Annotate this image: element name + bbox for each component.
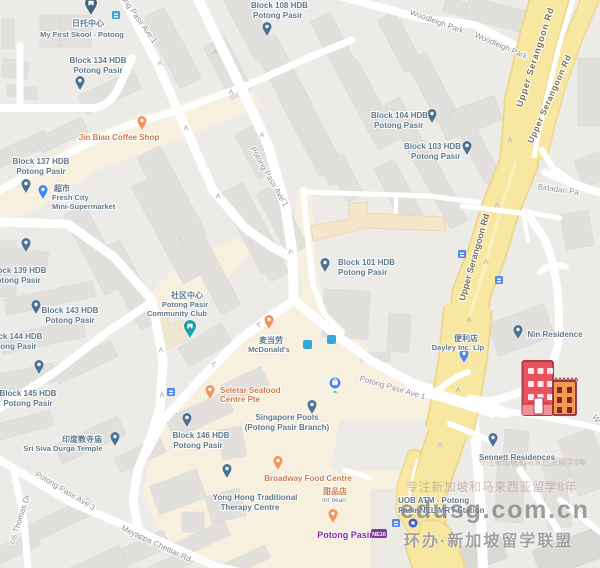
svg-text:Jin Biao Coffee Shop: Jin Biao Coffee Shop (79, 133, 160, 142)
svg-text:Potong Pasir Ave 1: Potong Pasir Ave 1 (359, 374, 427, 402)
svg-text:Block 145 HDB: Block 145 HDB (0, 389, 57, 398)
svg-text:My First Skool - Potong: My First Skool - Potong (40, 30, 124, 39)
svg-text:Block 104 HDB: Block 104 HDB (371, 111, 428, 120)
svg-text:Potong Pasir: Potong Pasir (173, 441, 222, 450)
svg-text:Block 143 HDB: Block 143 HDB (42, 306, 99, 315)
svg-text:NE10: NE10 (372, 532, 386, 538)
svg-text:Potong Pasir: Potong Pasir (3, 399, 52, 408)
svg-text:ong Pasir Ave 1: ong Pasir Ave 1 (119, 0, 159, 45)
svg-text:Potong Pasir: Potong Pasir (45, 316, 94, 325)
svg-text:麦当劳: 麦当劳 (259, 335, 283, 345)
svg-text:Potong Pasir: Potong Pasir (317, 530, 373, 540)
svg-text:McDonald's: McDonald's (248, 345, 290, 354)
svg-text:mr bean: mr bean (322, 497, 346, 504)
svg-text:Potong Pasir: Potong Pasir (73, 66, 122, 75)
svg-text:超市: 超市 (53, 183, 70, 193)
svg-text:cis Thomas Dr: cis Thomas Dr (7, 493, 32, 545)
svg-text:Singapore Pools: Singapore Pools (255, 413, 319, 422)
svg-text:Centre Pte: Centre Pte (220, 395, 261, 404)
svg-text:Potong Pasir: Potong Pasir (0, 276, 41, 285)
svg-text:Sri Siva Durga Temple: Sri Siva Durga Temple (23, 444, 102, 453)
svg-text:Yong Hong Traditional: Yong Hong Traditional (213, 493, 298, 502)
svg-text:Potong Pasir: Potong Pasir (338, 268, 387, 277)
svg-text:Therapy Centre: Therapy Centre (221, 503, 280, 512)
svg-text:Potong Pasir: Potong Pasir (16, 167, 65, 176)
svg-text:Meyappa Chettiar Rd: Meyappa Chettiar Rd (120, 524, 192, 564)
svg-text:Potong Pasir: Potong Pasir (162, 300, 208, 309)
svg-text:Block 144 HDB: Block 144 HDB (0, 332, 43, 341)
svg-text:Broadway Food Centre: Broadway Food Centre (264, 474, 352, 483)
svg-text:Seletar Seafood: Seletar Seafood (220, 386, 281, 395)
svg-text:Potong Pasir Ave 1: Potong Pasir Ave 1 (248, 145, 290, 209)
svg-text:(Potong Pasir Branch): (Potong Pasir Branch) (245, 423, 330, 432)
svg-text:Woodleigh Park: Woodleigh Park (409, 8, 466, 36)
svg-text:社区中心: 社区中心 (170, 290, 203, 300)
svg-text:Potong Pasir: Potong Pasir (0, 342, 37, 351)
svg-text:印度教寺庙: 印度教寺庙 (62, 434, 102, 444)
svg-text:Fresh City: Fresh City (52, 193, 90, 202)
svg-text:Block 134 HDB: Block 134 HDB (70, 56, 127, 65)
svg-text:Potong Pasir Ave 3: Potong Pasir Ave 3 (34, 470, 97, 513)
svg-text:Potong Pasir: Potong Pasir (253, 11, 302, 20)
svg-text:Potong Pasir: Potong Pasir (411, 152, 460, 161)
svg-text:甜品店: 甜品店 (323, 486, 347, 496)
svg-text:Mini-Supermarket: Mini-Supermarket (52, 202, 116, 211)
svg-text:Block 108 HDB: Block 108 HDB (251, 1, 308, 10)
svg-text:Potong Pasir: Potong Pasir (374, 121, 423, 130)
svg-text:Dayley Inc. Llp: Dayley Inc. Llp (432, 343, 485, 352)
svg-text:Block 103 HDB: Block 103 HDB (404, 142, 461, 151)
svg-text:日托中心: 日托中心 (72, 18, 104, 28)
svg-text:便利店: 便利店 (454, 333, 478, 343)
svg-text:Bidadari Pa: Bidadari Pa (537, 182, 580, 197)
svg-text:Block 137 HDB: Block 137 HDB (13, 157, 70, 166)
svg-text:Nin Residence: Nin Residence (527, 330, 583, 339)
svg-text:Community Club: Community Club (147, 309, 207, 318)
svg-text:Upper Serangoon Rd: Upper Serangoon Rd (457, 213, 491, 302)
svg-text:Woodleigh Park: Woodleigh Park (473, 31, 529, 62)
svg-text:Block 139 HDB: Block 139 HDB (0, 266, 47, 275)
svg-text:W: W (590, 413, 600, 424)
svg-text:Block 146 HDB: Block 146 HDB (173, 431, 230, 440)
svg-text:Block 101 HDB: Block 101 HDB (338, 258, 395, 267)
